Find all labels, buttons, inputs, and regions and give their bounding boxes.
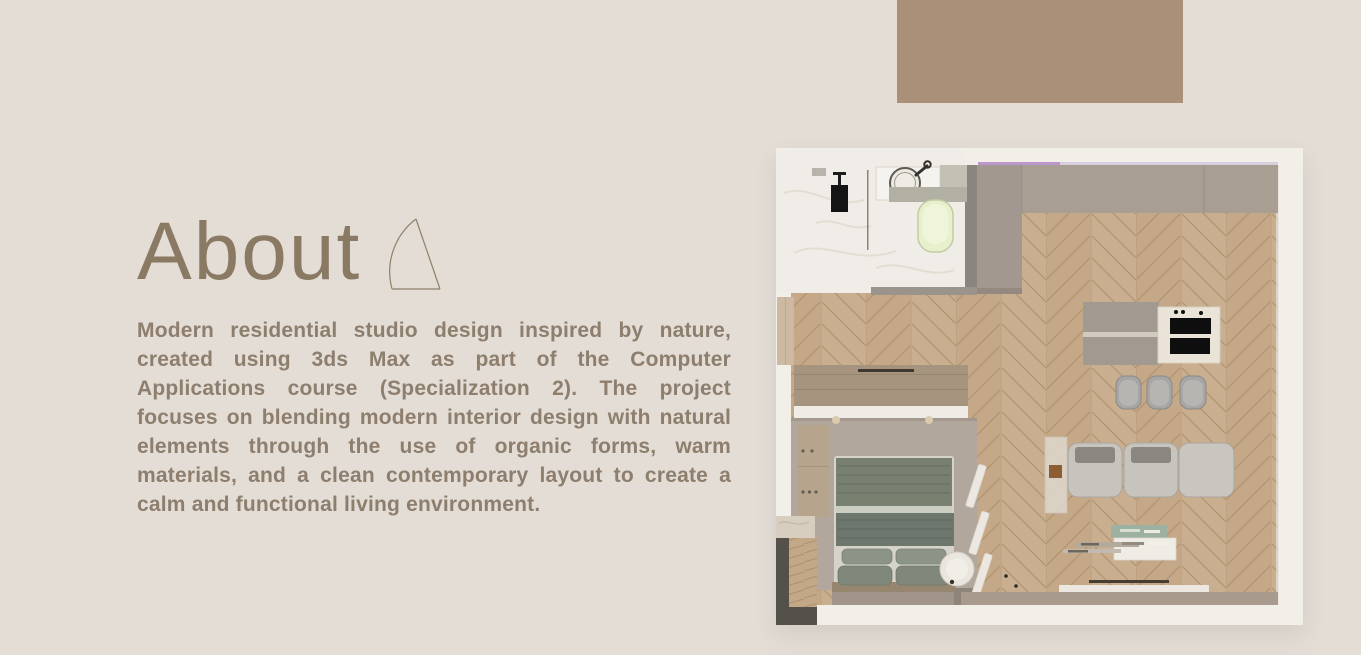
window-sill — [1059, 585, 1209, 592]
cooktop — [1158, 307, 1220, 363]
about-section: About Modern residential studio design i… — [137, 212, 737, 519]
bottom-wall — [961, 592, 1278, 605]
floor-plan — [776, 148, 1303, 625]
tv-cabinet — [794, 365, 968, 406]
bed — [832, 456, 956, 592]
bar-stools — [1116, 376, 1206, 409]
wardrobe — [798, 425, 829, 517]
glass-divider — [867, 170, 869, 250]
door-swing-icon — [389, 216, 443, 292]
bedside-table — [940, 552, 974, 586]
accent-line — [978, 162, 1060, 165]
entry-closet — [776, 516, 817, 625]
toilet — [918, 200, 953, 252]
wall-tv — [1089, 580, 1169, 583]
bathroom — [777, 150, 977, 295]
kitchen-cabinet-column — [976, 165, 1022, 291]
accent-rectangle — [897, 0, 1183, 103]
about-paragraph: Modern residential studio design inspire… — [137, 316, 731, 519]
heading-row: About — [137, 212, 737, 292]
bath-mat — [812, 168, 826, 176]
kitchen-island — [1083, 302, 1220, 365]
